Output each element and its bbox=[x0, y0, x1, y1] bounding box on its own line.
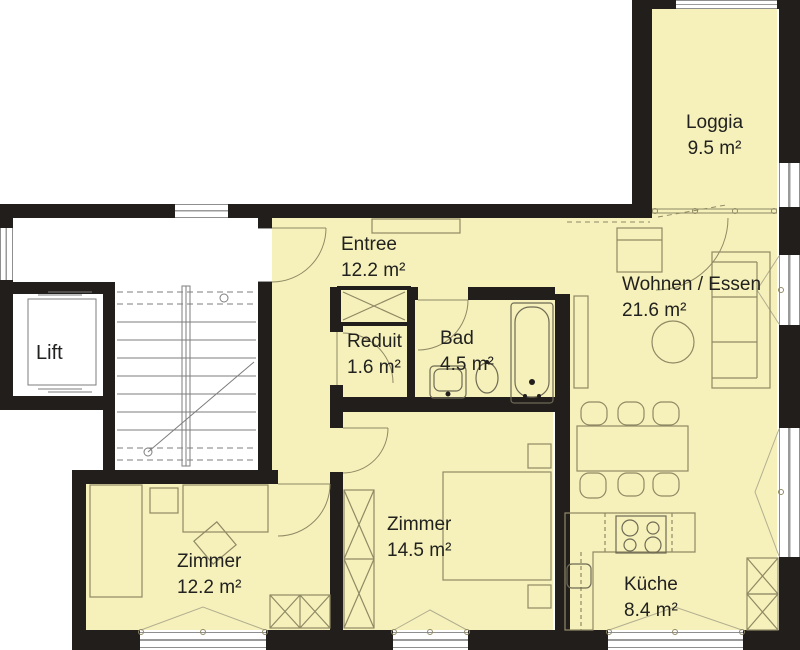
room-loggia-floor bbox=[652, 9, 777, 207]
room-area: 8.4 m² bbox=[624, 598, 678, 624]
window-left-landing bbox=[0, 228, 13, 280]
wall-bottom-c bbox=[468, 630, 608, 650]
window-zimmer2 bbox=[140, 632, 266, 648]
room-name: Loggia bbox=[652, 110, 777, 136]
wall-right-a bbox=[779, 207, 800, 255]
room-label-wohnen-essen: Wohnen / Essen 21.6 m² bbox=[622, 272, 761, 324]
entry-door-threshold bbox=[258, 228, 272, 282]
wall-left-top bbox=[0, 204, 13, 228]
wall-right-b bbox=[779, 325, 800, 428]
room-name: Küche bbox=[624, 572, 678, 598]
window-zimmer1 bbox=[393, 632, 468, 648]
room-name: Zimmer bbox=[387, 512, 451, 538]
room-name: Zimmer bbox=[177, 549, 241, 575]
wall-loggia-right bbox=[779, 0, 800, 163]
wall-reduit-bad bbox=[407, 300, 415, 397]
room-label-loggia: Loggia 9.5 m² bbox=[652, 110, 777, 162]
room-zimmer1-doorgap bbox=[330, 428, 343, 472]
wall-lift-top bbox=[0, 282, 115, 294]
wall-bad-bottom bbox=[330, 397, 570, 412]
room-area: 1.6 m² bbox=[347, 355, 402, 381]
room-reduit-doorgap bbox=[330, 332, 343, 385]
room-label-kueche: Küche 8.4 m² bbox=[624, 572, 678, 624]
room-name: Entree bbox=[341, 232, 405, 258]
room-area: 4.5 m² bbox=[440, 352, 494, 378]
wall-zimmer2-left bbox=[72, 470, 86, 650]
wall-top-main bbox=[228, 204, 652, 218]
wall-top-left bbox=[0, 204, 175, 218]
room-label-lift: Lift bbox=[36, 340, 63, 366]
window-living-right bbox=[779, 255, 800, 325]
wall-hall-left-b bbox=[258, 282, 272, 484]
wall-zimmer-divider bbox=[330, 472, 343, 650]
staircase bbox=[117, 286, 256, 466]
wall-lift-bottom bbox=[0, 396, 115, 410]
wall-zimmer2-top bbox=[72, 470, 278, 484]
room-name: Bad bbox=[440, 326, 494, 352]
wall-bad-top-b bbox=[468, 287, 555, 300]
window-dining-right bbox=[779, 428, 800, 557]
room-label-bad: Bad 4.5 m² bbox=[440, 326, 494, 378]
wall-left-mid bbox=[0, 280, 13, 410]
wall-loggia-left bbox=[632, 0, 652, 218]
window-loggia-top bbox=[676, 0, 777, 9]
room-name: Wohnen / Essen bbox=[622, 272, 761, 298]
window-kueche bbox=[608, 632, 743, 648]
wall-bad-top-a bbox=[407, 287, 418, 300]
room-bad-doorgap bbox=[418, 287, 468, 300]
room-label-zimmer2: Zimmer 12.2 m² bbox=[177, 549, 241, 601]
wall-center-vert bbox=[555, 294, 570, 632]
room-name: Reduit bbox=[347, 329, 402, 355]
stair-walkline bbox=[148, 362, 254, 452]
room-area: 14.5 m² bbox=[387, 538, 451, 564]
window-top-landing bbox=[175, 204, 228, 218]
stair-stringer bbox=[182, 286, 190, 466]
room-area: 12.2 m² bbox=[177, 575, 241, 601]
room-name: Lift bbox=[36, 340, 63, 366]
wall-lift-stairs bbox=[103, 282, 115, 470]
room-label-zimmer1: Zimmer 14.5 m² bbox=[387, 512, 451, 564]
wall-bottom-right bbox=[743, 630, 800, 650]
wall-hall-left-a bbox=[258, 218, 272, 228]
room-facade-strip bbox=[652, 207, 777, 218]
room-area: 21.6 m² bbox=[622, 298, 761, 324]
room-hall-floor bbox=[272, 287, 330, 484]
floor-plan: Loggia 9.5 m² Entree 12.2 m² Wohnen / Es… bbox=[0, 0, 800, 650]
room-area: 9.5 m² bbox=[652, 136, 777, 162]
window-loggia-right bbox=[779, 163, 800, 207]
wall-loggia-top bbox=[652, 0, 676, 9]
room-label-reduit: Reduit 1.6 m² bbox=[347, 329, 402, 381]
wall-hall-right-a bbox=[330, 287, 343, 332]
room-area: 12.2 m² bbox=[341, 258, 405, 284]
room-label-entree: Entree 12.2 m² bbox=[341, 232, 405, 284]
